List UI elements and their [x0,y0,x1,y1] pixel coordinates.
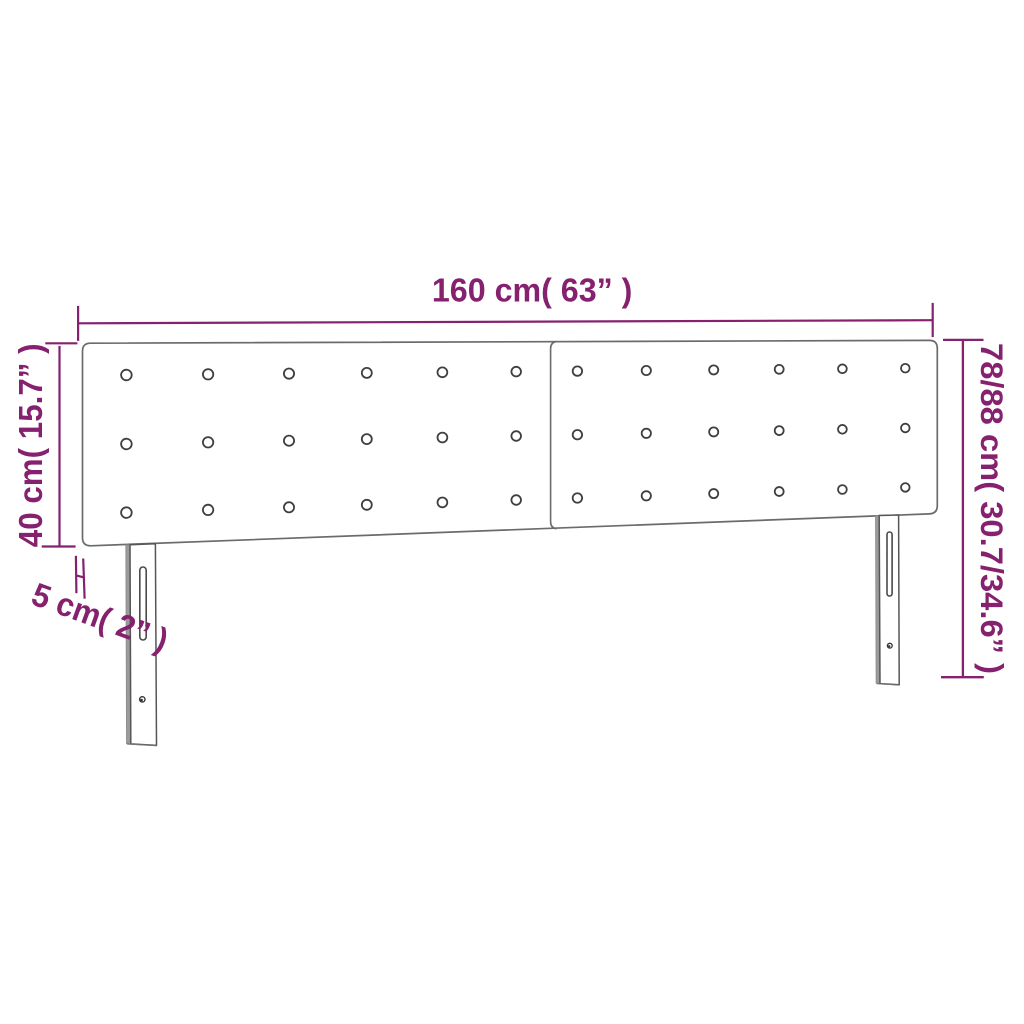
svg-text:160 cm( 63” ): 160 cm( 63” ) [432,272,633,309]
svg-text:78/88 cm( 30.7/34.6” ): 78/88 cm( 30.7/34.6” ) [974,343,1010,674]
svg-text:40 cm( 15.7” ): 40 cm( 15.7” ) [12,343,49,547]
